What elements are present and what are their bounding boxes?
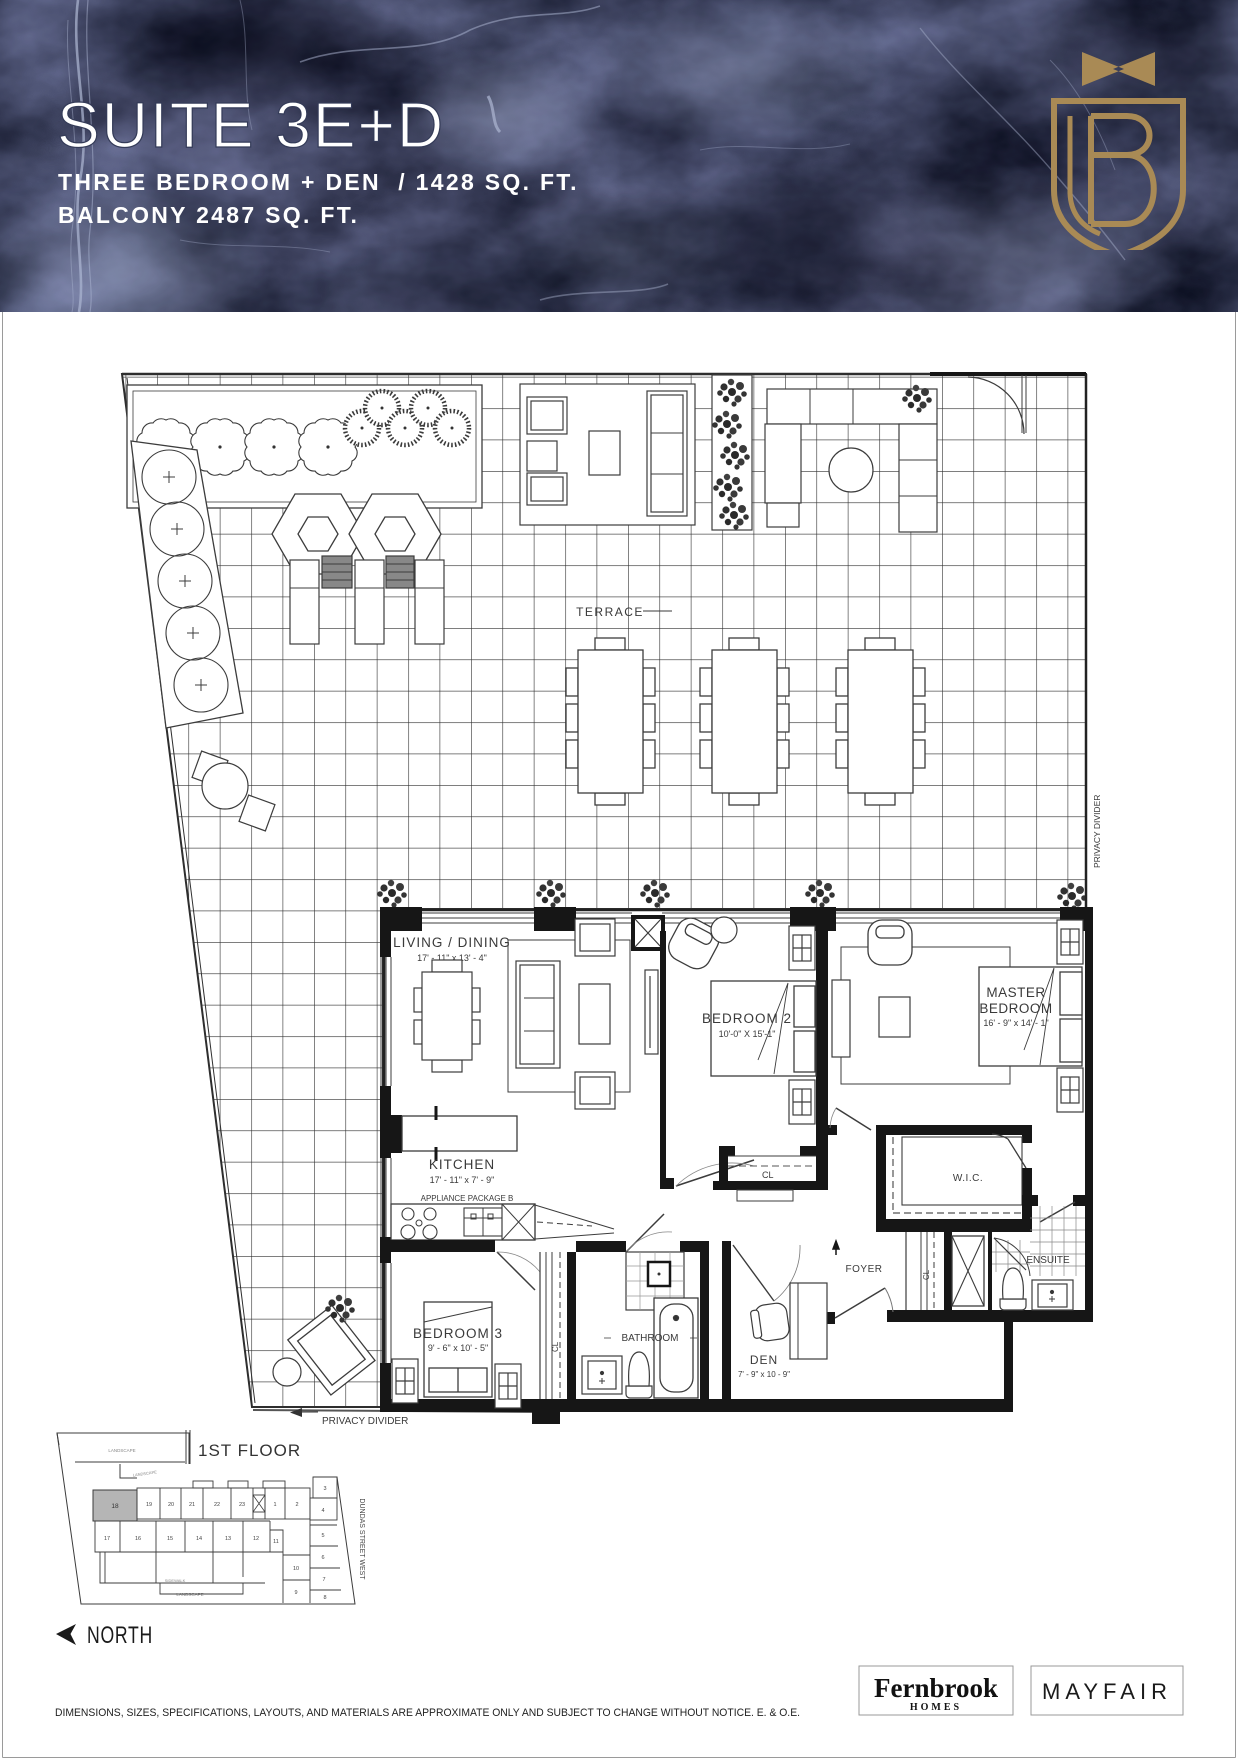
svg-text:HOMES: HOMES bbox=[910, 1702, 962, 1713]
svg-text:Fernbrook: Fernbrook bbox=[874, 1673, 998, 1703]
svg-text:22: 22 bbox=[214, 1502, 220, 1508]
svg-text:13: 13 bbox=[225, 1536, 231, 1542]
svg-text:LANDSCAPE: LANDSCAPE bbox=[132, 1469, 157, 1477]
svg-text:BEDROOM 3: BEDROOM 3 bbox=[413, 1326, 503, 1341]
svg-text:14: 14 bbox=[196, 1536, 202, 1542]
svg-text:7' - 9" x 10 - 9": 7' - 9" x 10 - 9" bbox=[738, 1370, 790, 1379]
svg-text:TERRACE: TERRACE bbox=[576, 605, 644, 619]
svg-text:2: 2 bbox=[295, 1502, 298, 1508]
svg-text:CL: CL bbox=[922, 1269, 931, 1280]
svg-text:19: 19 bbox=[146, 1502, 152, 1508]
svg-text:17: 17 bbox=[104, 1536, 110, 1542]
svg-text:NORTH: NORTH bbox=[87, 1622, 153, 1649]
svg-text:BATHROOM: BATHROOM bbox=[621, 1333, 678, 1344]
svg-text:8: 8 bbox=[323, 1595, 326, 1601]
svg-text:20: 20 bbox=[168, 1502, 174, 1508]
svg-text:DIMENSIONS, SIZES, SPECIFICATI: DIMENSIONS, SIZES, SPECIFICATIONS, LAYOU… bbox=[55, 1707, 800, 1719]
svg-text:LIVING / DINING: LIVING / DINING bbox=[393, 935, 511, 950]
svg-text:16: 16 bbox=[135, 1536, 141, 1542]
svg-text:16' - 9" x 14' - 1": 16' - 9" x 14' - 1" bbox=[983, 1018, 1048, 1028]
svg-text:PRIVACY DIVIDER: PRIVACY DIVIDER bbox=[322, 1416, 408, 1427]
svg-text:15: 15 bbox=[167, 1536, 173, 1542]
svg-text:CL: CL bbox=[762, 1170, 774, 1180]
svg-text:APPLIANCE PACKAGE B: APPLIANCE PACKAGE B bbox=[421, 1194, 514, 1203]
svg-text:9: 9 bbox=[294, 1590, 297, 1596]
svg-text:FOYER: FOYER bbox=[846, 1264, 883, 1275]
svg-text:9' - 6" x 10' - 5": 9' - 6" x 10' - 5" bbox=[428, 1343, 488, 1353]
svg-text:21: 21 bbox=[189, 1502, 195, 1508]
svg-text:ENSUITE: ENSUITE bbox=[1026, 1255, 1070, 1266]
svg-text:18: 18 bbox=[111, 1503, 119, 1510]
svg-text:W.I.C.: W.I.C. bbox=[953, 1173, 983, 1184]
svg-text:CL: CL bbox=[551, 1341, 560, 1352]
svg-text:6: 6 bbox=[321, 1555, 324, 1561]
svg-text:MASTER: MASTER bbox=[986, 985, 1045, 1000]
svg-text:3: 3 bbox=[323, 1486, 326, 1492]
svg-text:1: 1 bbox=[273, 1502, 276, 1508]
svg-text:12: 12 bbox=[253, 1536, 259, 1542]
svg-text:KITCHEN: KITCHEN bbox=[429, 1157, 495, 1172]
svg-text:LANDSCAPE: LANDSCAPE bbox=[176, 1592, 203, 1597]
svg-text:PRIVACY DIVIDER: PRIVACY DIVIDER bbox=[1092, 795, 1102, 868]
svg-text:DUNDAS STREET WEST: DUNDAS STREET WEST bbox=[358, 1498, 365, 1580]
svg-text:DEN: DEN bbox=[750, 1353, 778, 1367]
svg-text:LANDSCAPE: LANDSCAPE bbox=[108, 1448, 135, 1453]
svg-text:4: 4 bbox=[321, 1508, 324, 1514]
svg-text:SIDEWALK: SIDEWALK bbox=[165, 1578, 186, 1583]
svg-text:BEDROOM 2: BEDROOM 2 bbox=[702, 1011, 792, 1026]
svg-text:5: 5 bbox=[321, 1533, 324, 1539]
svg-text:23: 23 bbox=[239, 1502, 245, 1508]
svg-text:17' - 11" x 7' - 9": 17' - 11" x 7' - 9" bbox=[430, 1175, 495, 1185]
svg-text:10'-0" X 15'-1": 10'-0" X 15'-1" bbox=[719, 1029, 776, 1039]
svg-text:BEDROOM: BEDROOM bbox=[979, 1001, 1052, 1016]
svg-text:10: 10 bbox=[293, 1566, 299, 1572]
svg-text:7: 7 bbox=[322, 1577, 325, 1583]
svg-text:1ST FLOOR: 1ST FLOOR bbox=[198, 1441, 301, 1460]
svg-text:11: 11 bbox=[273, 1539, 279, 1545]
svg-text:MAYFAIR: MAYFAIR bbox=[1042, 1679, 1172, 1704]
